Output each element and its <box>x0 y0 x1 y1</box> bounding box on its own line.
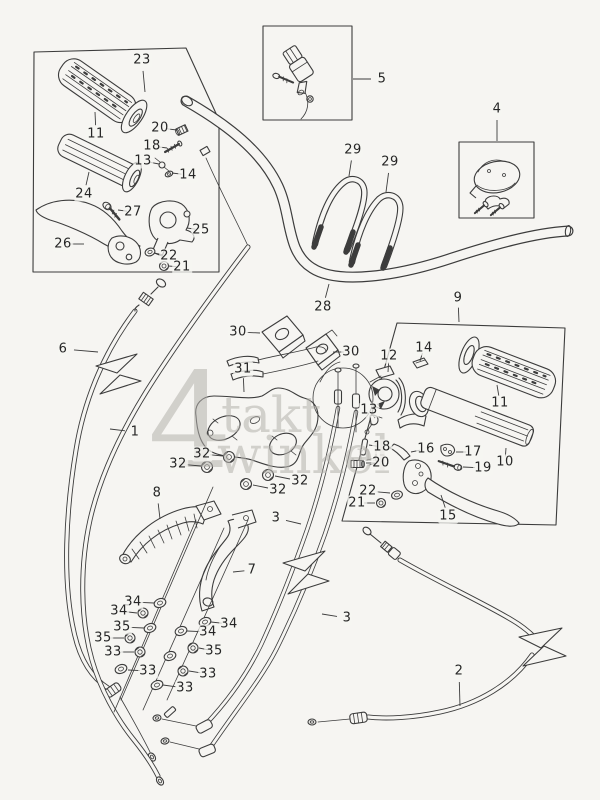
part-callout-29: 29 <box>380 155 400 170</box>
part-callout-30: 30 <box>228 325 248 340</box>
part-callout-24: 24 <box>74 187 94 202</box>
part-callout-18: 18 <box>372 440 392 455</box>
leader-line <box>110 429 125 431</box>
part-callout-34: 34 <box>219 617 239 632</box>
leader-line <box>322 614 337 616</box>
part-callout-32: 32 <box>290 474 310 489</box>
leader-line <box>143 71 145 92</box>
part-callout-4: 4 <box>492 102 503 117</box>
part-callout-33: 33 <box>198 667 218 682</box>
part-callout-26: 26 <box>53 237 73 252</box>
part-callout-3: 3 <box>271 511 282 526</box>
leader-line <box>187 465 201 466</box>
part-callout-21: 21 <box>347 496 367 511</box>
part-callout-14: 14 <box>178 168 198 183</box>
leader-line <box>325 284 329 298</box>
part-callout-1: 1 <box>130 425 141 440</box>
leader-line <box>349 160 351 176</box>
part-callout-34: 34 <box>198 625 218 640</box>
leader-line <box>497 385 499 396</box>
leader-line <box>210 455 223 456</box>
part-callout-33: 33 <box>103 645 123 660</box>
leader-line <box>386 173 389 192</box>
part-callout-35: 35 <box>204 644 224 659</box>
part-callout-27: 27 <box>123 205 143 220</box>
part-callout-16: 16 <box>416 442 436 457</box>
leader-line <box>141 602 154 603</box>
leader-line <box>86 172 89 185</box>
part-callout-20: 20 <box>150 121 170 136</box>
part-callout-28: 28 <box>313 300 333 315</box>
part-callout-9: 9 <box>453 291 464 306</box>
part-callout-25: 25 <box>191 223 211 238</box>
part-callout-21: 21 <box>172 260 192 275</box>
part-callout-5: 5 <box>377 72 388 87</box>
leader-line <box>163 685 176 687</box>
part-callout-35: 35 <box>93 631 113 646</box>
leader-line <box>243 378 244 392</box>
part-callout-13: 13 <box>133 154 153 169</box>
leader-line <box>131 627 144 628</box>
leader-line <box>233 571 244 572</box>
part-callout-13: 13 <box>359 403 379 418</box>
part-callout-34: 34 <box>109 604 129 619</box>
part-callout-11: 11 <box>86 127 106 142</box>
part-callout-29: 29 <box>343 143 363 158</box>
part-callout-33: 33 <box>175 681 195 696</box>
part-callout-8: 8 <box>152 486 163 501</box>
part-callout-30: 30 <box>341 345 361 360</box>
leader-line <box>247 332 260 333</box>
part-callout-32: 32 <box>268 483 288 498</box>
leader-line <box>286 520 301 524</box>
part-callout-2: 2 <box>454 664 465 679</box>
part-callout-14: 14 <box>414 341 434 356</box>
leader-line <box>275 476 290 479</box>
part-callout-6: 6 <box>58 342 69 357</box>
leader-line <box>74 350 98 352</box>
leader-line <box>253 485 268 488</box>
callout-leaders <box>0 0 600 800</box>
part-callout-11: 11 <box>490 396 510 411</box>
part-callout-23: 23 <box>132 53 152 68</box>
part-callout-32: 32 <box>192 447 212 462</box>
part-callout-19: 19 <box>473 461 493 476</box>
part-callout-15: 15 <box>438 509 458 524</box>
part-callout-20: 20 <box>371 456 391 471</box>
part-callout-12: 12 <box>379 349 399 364</box>
leader-line <box>377 492 390 493</box>
leader-line <box>158 503 160 519</box>
part-callout-33: 33 <box>138 664 158 679</box>
leader-line <box>458 308 459 322</box>
leader-line <box>459 682 460 706</box>
part-callout-18: 18 <box>142 139 162 154</box>
part-callout-7: 7 <box>247 563 258 578</box>
leader-line <box>441 495 445 508</box>
leader-line <box>388 362 389 372</box>
part-callout-32: 32 <box>168 457 188 472</box>
part-callout-17: 17 <box>463 445 483 460</box>
exploded-parts-diagram: 4 takt winkel .nl 2311201813142427262522… <box>0 0 600 800</box>
part-callout-35: 35 <box>112 620 132 635</box>
part-callout-10: 10 <box>495 455 515 470</box>
part-callout-3: 3 <box>342 611 353 626</box>
leader-line <box>95 112 96 125</box>
part-callout-31: 31 <box>233 362 253 377</box>
